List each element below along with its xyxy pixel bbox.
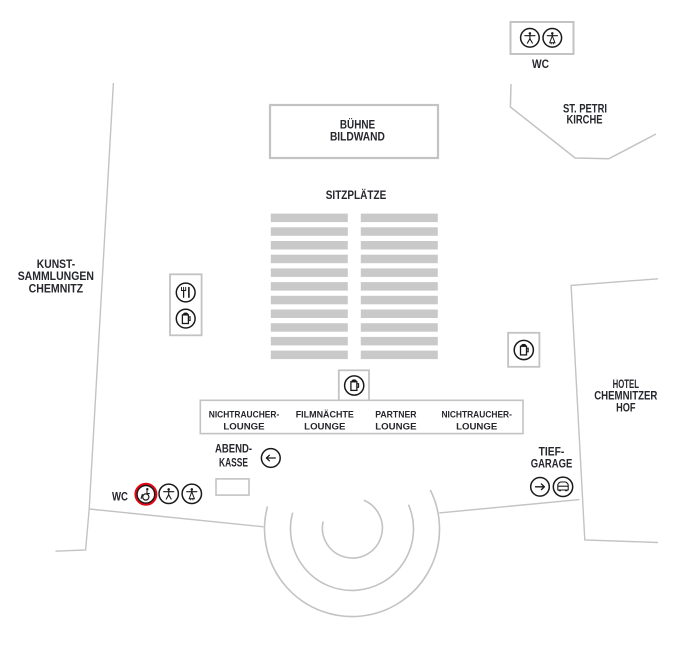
svg-text:SAMMLUNGEN: SAMMLUNGEN <box>18 271 94 283</box>
svg-text:LOUNGE: LOUNGE <box>375 422 416 433</box>
svg-text:BÜHNE: BÜHNE <box>340 118 375 131</box>
svg-text:FILMNÄCHTE: FILMNÄCHTE <box>296 410 354 421</box>
svg-text:KIRCHE: KIRCHE <box>567 112 603 126</box>
svg-text:WC: WC <box>532 59 549 71</box>
svg-text:WC: WC <box>112 491 128 503</box>
svg-text:LOUNGE: LOUNGE <box>223 422 264 433</box>
svg-text:HOF: HOF <box>616 402 635 414</box>
svg-text:NICHTRAUCHER-: NICHTRAUCHER- <box>441 410 512 421</box>
svg-text:GARAGE: GARAGE <box>531 457 573 471</box>
svg-text:SITZPLÄTZE: SITZPLÄTZE <box>326 189 387 202</box>
svg-text:KUNST-: KUNST- <box>37 259 76 271</box>
svg-text:BILDWAND: BILDWAND <box>330 132 385 144</box>
svg-text:NICHTRAUCHER-: NICHTRAUCHER- <box>209 410 280 421</box>
svg-text:LOUNGE: LOUNGE <box>304 422 345 433</box>
svg-text:ABEND-: ABEND- <box>215 442 252 456</box>
svg-text:HOTEL: HOTEL <box>613 379 639 391</box>
svg-text:CHEMNITZ: CHEMNITZ <box>29 284 84 296</box>
svg-text:KASSE: KASSE <box>219 456 248 470</box>
svg-text:CHEMNITZER: CHEMNITZER <box>594 391 658 403</box>
svg-text:PARTNER: PARTNER <box>375 410 416 421</box>
svg-text:LOUNGE: LOUNGE <box>456 422 497 433</box>
